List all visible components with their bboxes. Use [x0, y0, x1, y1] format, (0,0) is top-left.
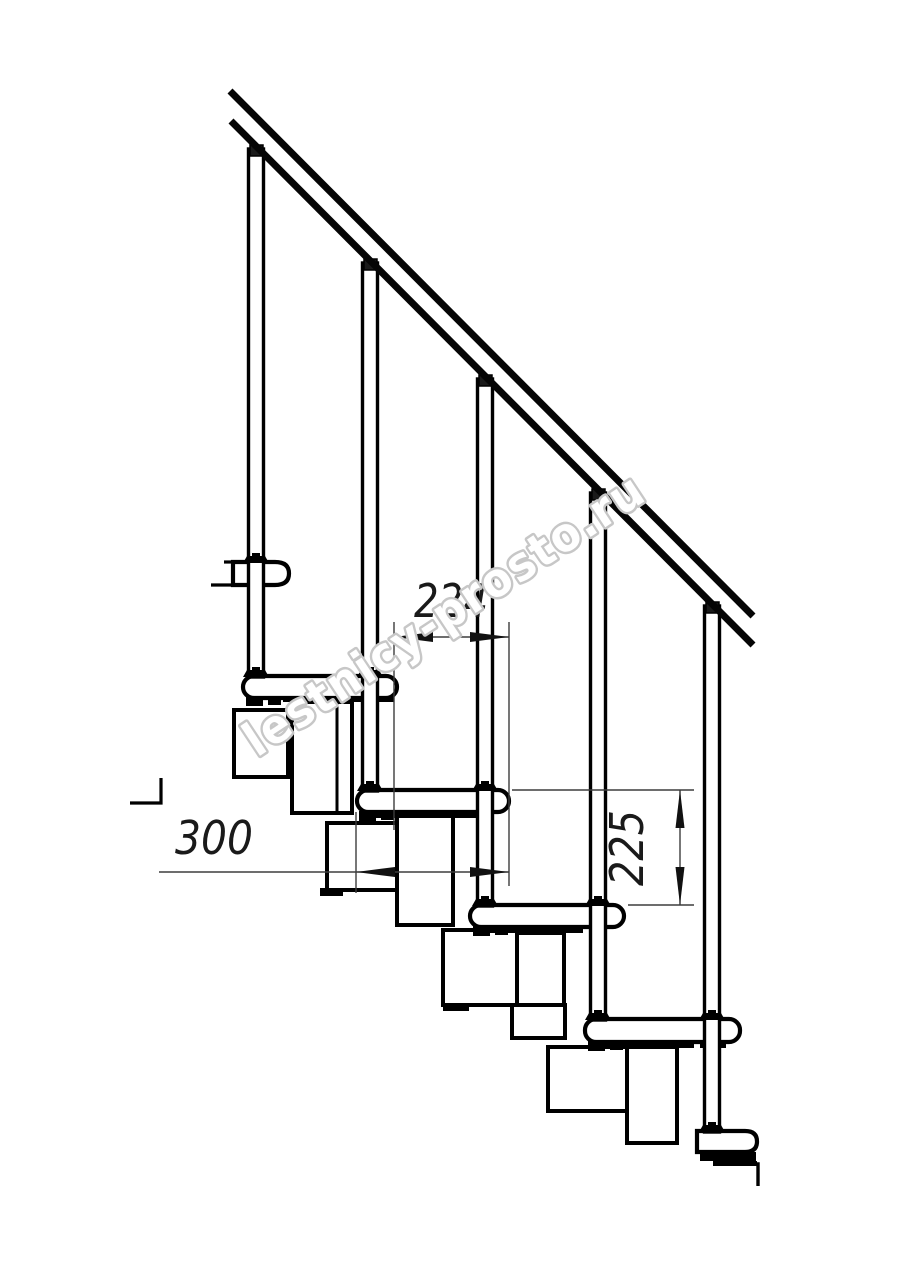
baluster-4	[591, 493, 606, 1020]
module-box	[327, 823, 403, 890]
module-box	[517, 933, 564, 1005]
module-box	[548, 1047, 632, 1111]
module-box	[397, 813, 453, 925]
baluster-1	[249, 149, 264, 677]
staircase-technical-drawing: 224 300 225 lestnicy-prosto.ru	[0, 0, 914, 1280]
baluster-5	[705, 606, 720, 1132]
drawing-canvas: 224 300 225 lestnicy-prosto.ru	[0, 0, 914, 1280]
tread-5-partial	[697, 1131, 757, 1152]
paper-background	[0, 0, 914, 1280]
module-box	[512, 1005, 565, 1038]
module-box	[627, 1047, 677, 1143]
baluster-3	[478, 379, 493, 906]
dimension-225-label: 225	[600, 810, 654, 886]
dimension-300-label: 300	[175, 811, 253, 865]
module-box	[443, 930, 517, 1005]
baluster-2	[363, 263, 378, 791]
